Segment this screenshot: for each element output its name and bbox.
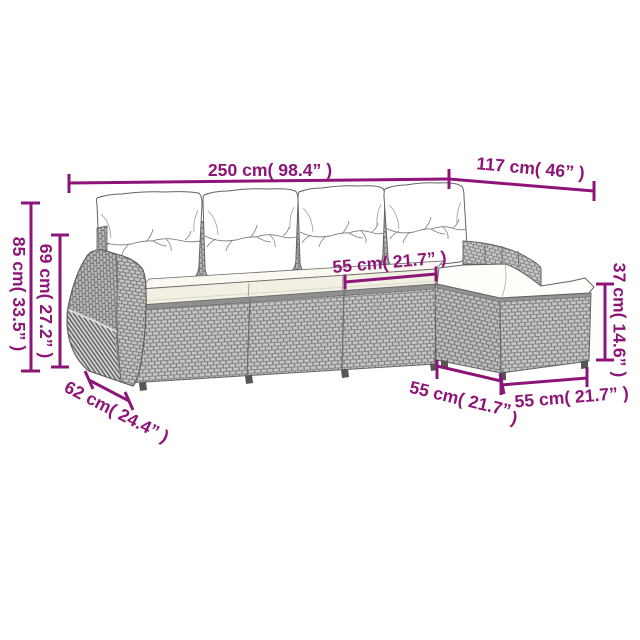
svg-text:37 cm( 14.6” ): 37 cm( 14.6” ): [610, 263, 630, 377]
svg-text:250 cm( 98.4” ): 250 cm( 98.4” ): [208, 160, 332, 180]
svg-text:69 cm( 27.2” ): 69 cm( 27.2” ): [36, 244, 56, 358]
svg-text:85 cm( 33.5” ): 85 cm( 33.5” ): [9, 237, 29, 351]
